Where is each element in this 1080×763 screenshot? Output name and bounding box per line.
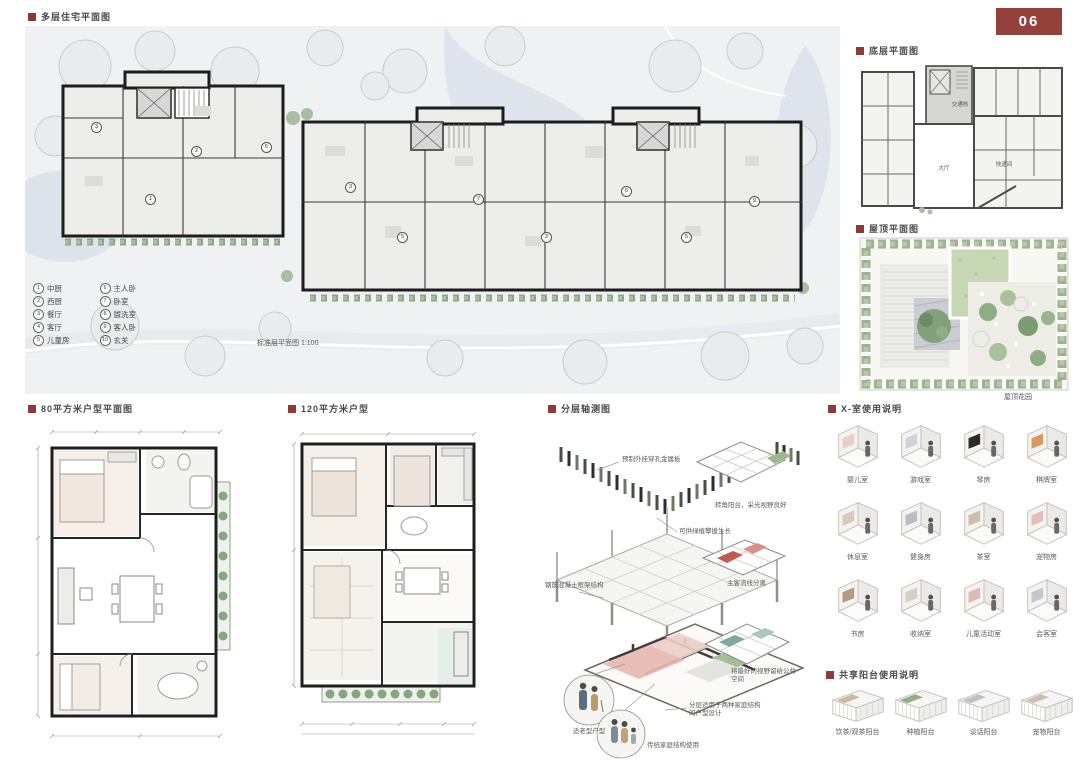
legend-number: 7	[100, 296, 111, 307]
note-elderly-unit: 适老型户型	[557, 728, 621, 736]
legend-item: 5 儿童房	[33, 334, 70, 347]
balcony-usage-label: 饮茶/观茶阳台	[836, 727, 880, 737]
room-usage-cell: 婴儿室	[826, 418, 889, 485]
section-title-text: X-室使用说明	[841, 402, 902, 415]
iso-room-icon	[955, 495, 1013, 551]
site-plan-panel: 3 1 2 5 3 5 7 3 6 5 9	[25, 26, 840, 394]
label-parcel-room: 快递间	[996, 160, 1013, 168]
unit120-panel	[286, 418, 491, 755]
legend-number: 8	[100, 309, 111, 320]
roof-plan-panel: 屋顶花园	[856, 234, 1072, 401]
unit80-panel	[28, 418, 238, 755]
room-usage-cell: 儿童活动室	[952, 572, 1015, 639]
iso-room-icon	[892, 418, 950, 474]
iso-balcony-icon	[1016, 686, 1078, 726]
section-title-site-plan: 多层住宅平面图	[28, 10, 111, 23]
legend-label: 盥洗室	[114, 309, 137, 320]
section-title-room-usage: X-室使用说明	[828, 402, 902, 415]
room-usage-cell: 琴房	[952, 418, 1015, 485]
legend-number: 6	[100, 283, 111, 294]
balcony-usage-cell: 种植阳台	[889, 686, 952, 737]
roof-garden-caption: 屋顶花园	[1004, 392, 1032, 402]
room-usage-label: 会客室	[1036, 629, 1057, 639]
red-square-bullet	[28, 13, 36, 21]
iso-room-icon	[1018, 495, 1076, 551]
plan-scale-caption: 标准层平面图 1:100	[257, 338, 318, 348]
red-square-bullet	[828, 405, 836, 413]
room-number-marker: 2	[191, 146, 202, 157]
room-usage-label: 收纳室	[910, 629, 931, 639]
legend-number: 9	[100, 322, 111, 333]
room-usage-label: 儿童活动室	[966, 629, 1001, 639]
balcony-usage-cell: 饮茶/观茶阳台	[826, 686, 889, 737]
note-climbing-plants: 可供绿植攀援生长	[679, 528, 763, 536]
axon-panel: 预制外挂穿孔金属板 可供绿植攀援生长 钢筋混凝土框架结构 转角阳台，采光视野良好…	[545, 412, 823, 763]
unit120-drawing	[286, 418, 491, 750]
room-number-marker: 3	[345, 182, 356, 193]
legend-item: 9 客人卧	[100, 321, 137, 334]
iso-room-icon	[829, 495, 887, 551]
legend-number: 4	[33, 322, 44, 333]
section-title-balcony-usage: 共享阳台使用说明	[826, 668, 919, 681]
legend-number: 10	[100, 335, 111, 346]
ground-floor-drawing: 交通核 大厅 快递间	[856, 58, 1068, 216]
legend-label: 餐厅	[47, 309, 62, 320]
room-number-marker: 5	[261, 142, 272, 153]
red-square-bullet	[856, 47, 864, 55]
legend-number: 2	[33, 296, 44, 307]
iso-balcony-icon	[953, 686, 1015, 726]
plan-legend: 1 中厨 2 西厨 3 餐厅 4 客厅	[33, 282, 136, 347]
room-number-marker: 7	[473, 194, 484, 205]
legend-label: 西厨	[47, 296, 62, 307]
iso-room-icon	[955, 572, 1013, 628]
section-title-ground-floor: 底层平面图	[856, 44, 919, 57]
iso-room-icon	[1018, 418, 1076, 474]
room-usage-label: 健身房	[910, 552, 931, 562]
balcony-usage-label: 宠物阳台	[1033, 727, 1061, 737]
room-usage-label: 婴儿室	[847, 475, 868, 485]
section-title-text: 120平方米户型	[301, 402, 369, 415]
legend-item: 3 餐厅	[33, 308, 70, 321]
room-number-marker: 9	[749, 196, 760, 207]
room-usage-label: 书房	[851, 629, 865, 639]
site-plan-drawing	[25, 26, 840, 394]
legend-number: 1	[33, 283, 44, 294]
balcony-usage-cell: 谈话阳台	[952, 686, 1015, 737]
legend-item: 1 中厨	[33, 282, 70, 295]
iso-balcony-icon	[827, 686, 889, 726]
room-usage-cell: 宠物房	[1015, 495, 1078, 562]
room-usage-cell: 健身房	[889, 495, 952, 562]
page-number-badge: 06	[996, 8, 1062, 35]
room-usage-cell: 收纳室	[889, 572, 952, 639]
legend-number: 5	[33, 335, 44, 346]
room-usage-label: 宠物房	[1036, 552, 1057, 562]
balcony-usage-cell: 宠物阳台	[1015, 686, 1078, 737]
room-usage-label: 琴房	[977, 475, 991, 485]
room-usage-cell: 会客室	[1015, 572, 1078, 639]
note-flow-separation: 主客流线分离	[727, 580, 797, 588]
legend-item: 2 西厨	[33, 295, 70, 308]
room-usage-cell: 游戏室	[889, 418, 952, 485]
section-title-text: 多层住宅平面图	[41, 10, 111, 23]
room-number-marker: 5	[681, 232, 692, 243]
legend-item: 7 卧室	[100, 295, 137, 308]
iso-room-icon	[1018, 572, 1076, 628]
legend-label: 儿童房	[47, 335, 70, 346]
room-number-marker: 6	[621, 186, 632, 197]
room-usage-label: 棋牌室	[1036, 475, 1057, 485]
room-usage-label: 游戏室	[910, 475, 931, 485]
note-corner-balcony: 转角阳台，采光视野良好	[715, 502, 791, 510]
ground-floor-panel: 交通核 大厅 快递间	[856, 58, 1068, 221]
room-number-marker: 3	[91, 122, 102, 133]
section-title-unit80: 80平方米户型平面图	[28, 402, 133, 415]
note-traditional-family: 传统家庭结构使用	[647, 742, 731, 750]
legend-item: 8 盥洗室	[100, 308, 137, 321]
iso-room-icon	[955, 418, 1013, 474]
balcony-usage-label: 谈话阳台	[970, 727, 998, 737]
legend-item: 10 玄关	[100, 334, 137, 347]
note-concrete-frame: 钢筋混凝土框架结构	[545, 582, 605, 590]
legend-label: 主人卧	[114, 283, 137, 294]
iso-room-icon	[892, 572, 950, 628]
iso-room-icon	[892, 495, 950, 551]
balcony-usage-grid: 饮茶/观茶阳台 种植阳台	[826, 686, 1078, 737]
room-usage-cell: 休息室	[826, 495, 889, 562]
room-usage-cell: 棋牌室	[1015, 418, 1078, 485]
room-number-marker: 5	[397, 232, 408, 243]
section-title-text: 80平方米户型平面图	[41, 402, 133, 415]
room-usage-grid: 婴儿室 游戏室	[826, 418, 1078, 639]
room-usage-cell: 书房	[826, 572, 889, 639]
unit80-drawing	[28, 418, 238, 750]
iso-room-icon	[829, 418, 887, 474]
note-best-view: 将最好的视野留给公共空间	[731, 668, 801, 685]
room-number-marker: 3	[541, 232, 552, 243]
legend-label: 卧室	[114, 296, 129, 307]
iso-room-icon	[829, 572, 887, 628]
section-title-unit120: 120平方米户型	[288, 402, 369, 415]
room-number-marker: 1	[145, 194, 156, 205]
room-usage-label: 茶室	[977, 552, 991, 562]
legend-label: 客厅	[47, 322, 62, 333]
note-prefab-panel: 预制外挂穿孔金属板	[622, 456, 714, 464]
room-usage-cell: 茶室	[952, 495, 1015, 562]
legend-number: 3	[33, 309, 44, 320]
roof-plan-drawing	[856, 234, 1072, 396]
red-square-bullet	[826, 671, 834, 679]
legend-item: 6 主人卧	[100, 282, 137, 295]
note-two-family-types: 分层适用于两种家庭结构的户型设计	[689, 702, 765, 719]
legend-label: 玄关	[114, 335, 129, 346]
presentation-board: 多层住宅平面图 06	[0, 0, 1080, 763]
room-usage-label: 休息室	[847, 552, 868, 562]
label-hall: 大厅	[938, 164, 950, 172]
section-title-text: 共享阳台使用说明	[839, 668, 919, 681]
legend-item: 4 客厅	[33, 321, 70, 334]
iso-balcony-icon	[890, 686, 952, 726]
balcony-usage-label: 种植阳台	[907, 727, 935, 737]
red-square-bullet	[856, 225, 864, 233]
red-square-bullet	[288, 405, 296, 413]
legend-label: 中厨	[47, 283, 62, 294]
label-core: 交通核	[952, 100, 969, 108]
section-title-text: 底层平面图	[869, 44, 919, 57]
red-square-bullet	[28, 405, 36, 413]
legend-label: 客人卧	[114, 322, 137, 333]
